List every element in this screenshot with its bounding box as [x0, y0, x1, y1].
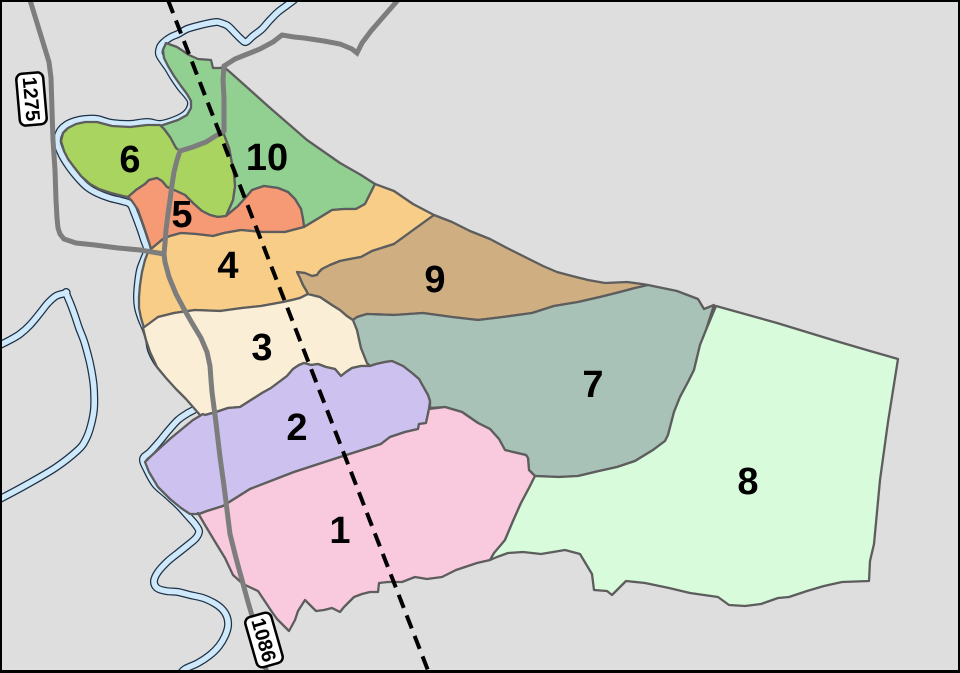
svg-text:4: 4 [217, 245, 238, 287]
svg-text:1: 1 [329, 510, 350, 552]
svg-text:8: 8 [737, 461, 758, 503]
svg-text:10: 10 [246, 137, 288, 179]
svg-text:3: 3 [251, 327, 272, 369]
svg-text:5: 5 [171, 194, 192, 236]
svg-text:6: 6 [119, 139, 140, 181]
svg-text:7: 7 [582, 364, 603, 406]
svg-text:2: 2 [286, 407, 307, 449]
svg-text:1275: 1275 [18, 76, 44, 122]
svg-text:9: 9 [424, 259, 445, 301]
